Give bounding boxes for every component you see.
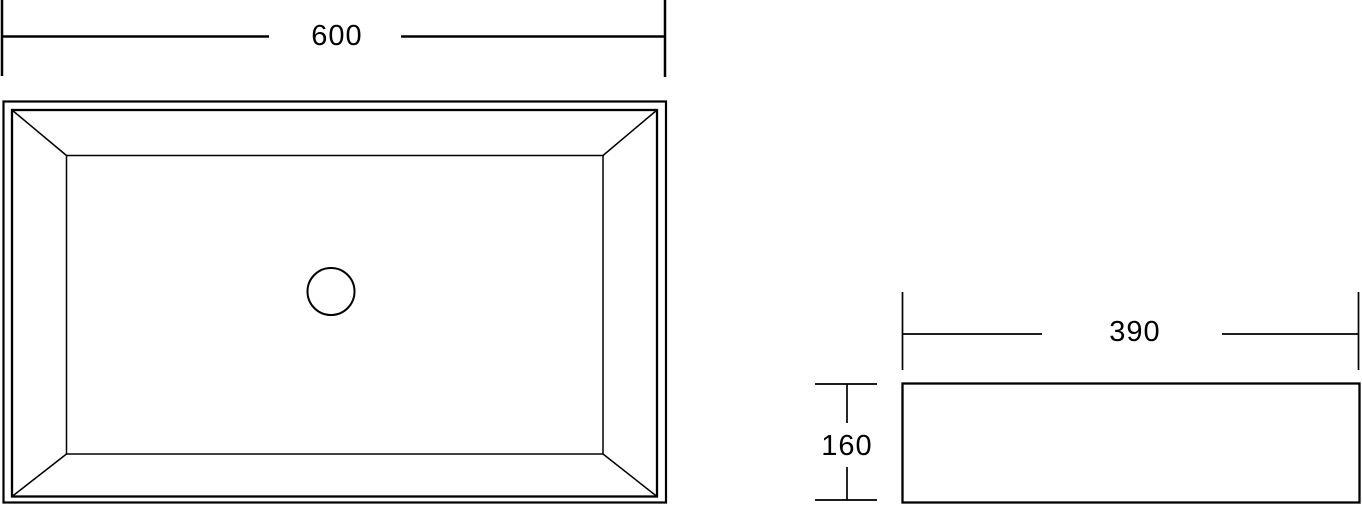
side-view-body — [903, 384, 1360, 503]
side-view-height-label: 160 — [821, 430, 872, 462]
slope-line-top-right — [603, 110, 657, 156]
top-view: 600 — [2, 0, 666, 503]
side-view-height-dimension: 160 — [815, 384, 877, 500]
side-view-width-label: 390 — [1109, 316, 1160, 348]
top-view-corner-slope-lines — [12, 110, 657, 497]
top-view-basin-bottom — [67, 156, 604, 455]
top-view-width-label: 600 — [311, 20, 362, 52]
drain-circle — [308, 268, 355, 315]
side-view: 390 160 — [815, 292, 1360, 503]
slope-line-bottom-right — [603, 454, 657, 497]
top-view-outer-edge — [4, 102, 667, 503]
slope-line-top-left — [12, 110, 67, 156]
top-view-width-dimension: 600 — [2, 0, 665, 77]
slope-line-bottom-left — [12, 454, 67, 497]
side-view-width-dimension: 390 — [903, 292, 1359, 370]
technical-drawing-canvas: 600 — [0, 0, 1362, 506]
basin-dimension-drawing: 600 — [0, 0, 1362, 506]
top-view-rim-edge — [12, 110, 657, 497]
